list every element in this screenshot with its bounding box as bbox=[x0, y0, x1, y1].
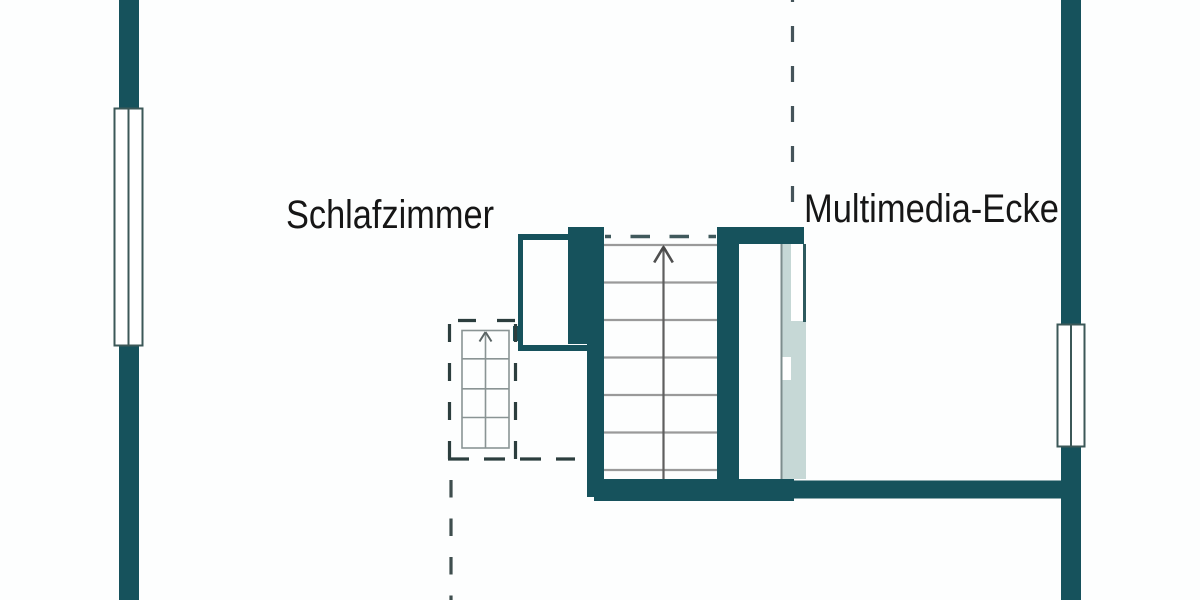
svg-text:Schlafzimmer: Schlafzimmer bbox=[286, 193, 494, 237]
svg-text:Multimedia-Ecke: Multimedia-Ecke bbox=[804, 187, 1059, 231]
